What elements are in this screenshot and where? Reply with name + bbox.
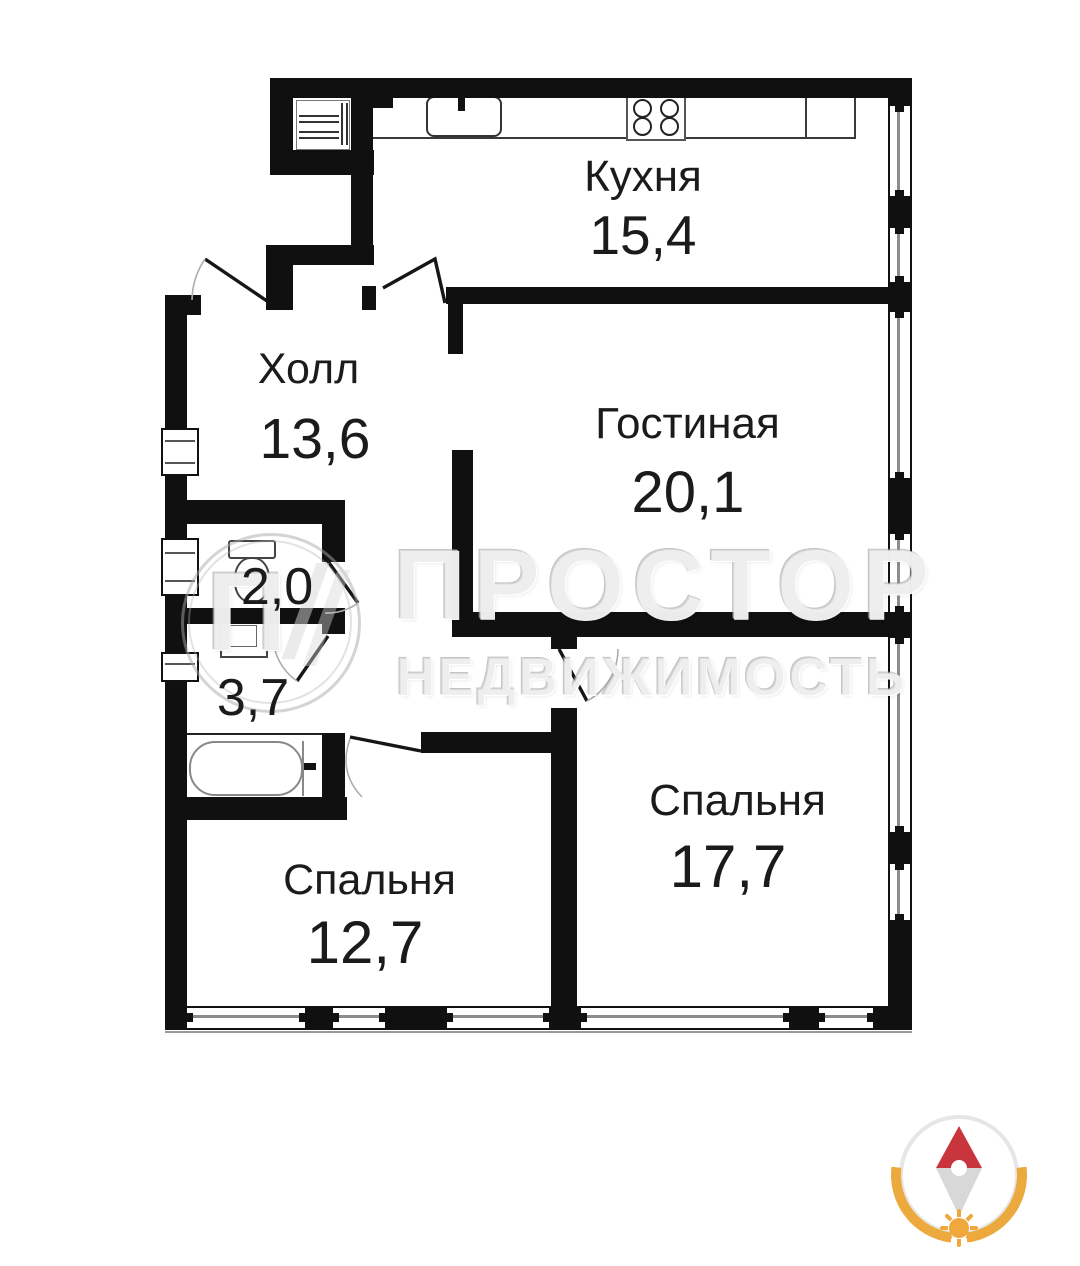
sun-icon [944,1213,974,1243]
room-label-bedroom-left: Спальня [252,859,487,902]
watermark-subtitle: НЕДВИЖИМОСТЬ [393,650,910,704]
sun-disc [949,1218,969,1238]
floor-plan: Кухня 15,4 Холл 13,6 Гостиная 20,1 2,0 3… [0,0,1080,1266]
entry-door-arc [192,259,205,300]
room-area-bathroom: 3,7 [193,672,313,724]
room-label-kitchen: Кухня [558,155,728,199]
watermark-title: ПРОСТОР [393,535,910,635]
entry-door-leaf [205,259,267,301]
room-label-bedroom-right: Спальня [620,779,855,823]
compass-hub [951,1160,967,1176]
room-area-bedroom-left: 12,7 [275,913,455,973]
bedroom-left-door-leaf [350,737,421,751]
room-label-living: Гостиная [570,402,805,446]
room-label-hall: Холл [226,348,391,391]
room-area-bedroom-right: 17,7 [638,837,818,897]
room-area-wc: 2,0 [217,561,337,613]
room-area-kitchen: 15,4 [558,208,728,263]
room-area-living: 20,1 [598,464,778,522]
kitchen-door-leaf [383,259,445,303]
bedroom-left-door-arc [346,739,362,797]
room-area-hall: 13,6 [230,411,400,468]
